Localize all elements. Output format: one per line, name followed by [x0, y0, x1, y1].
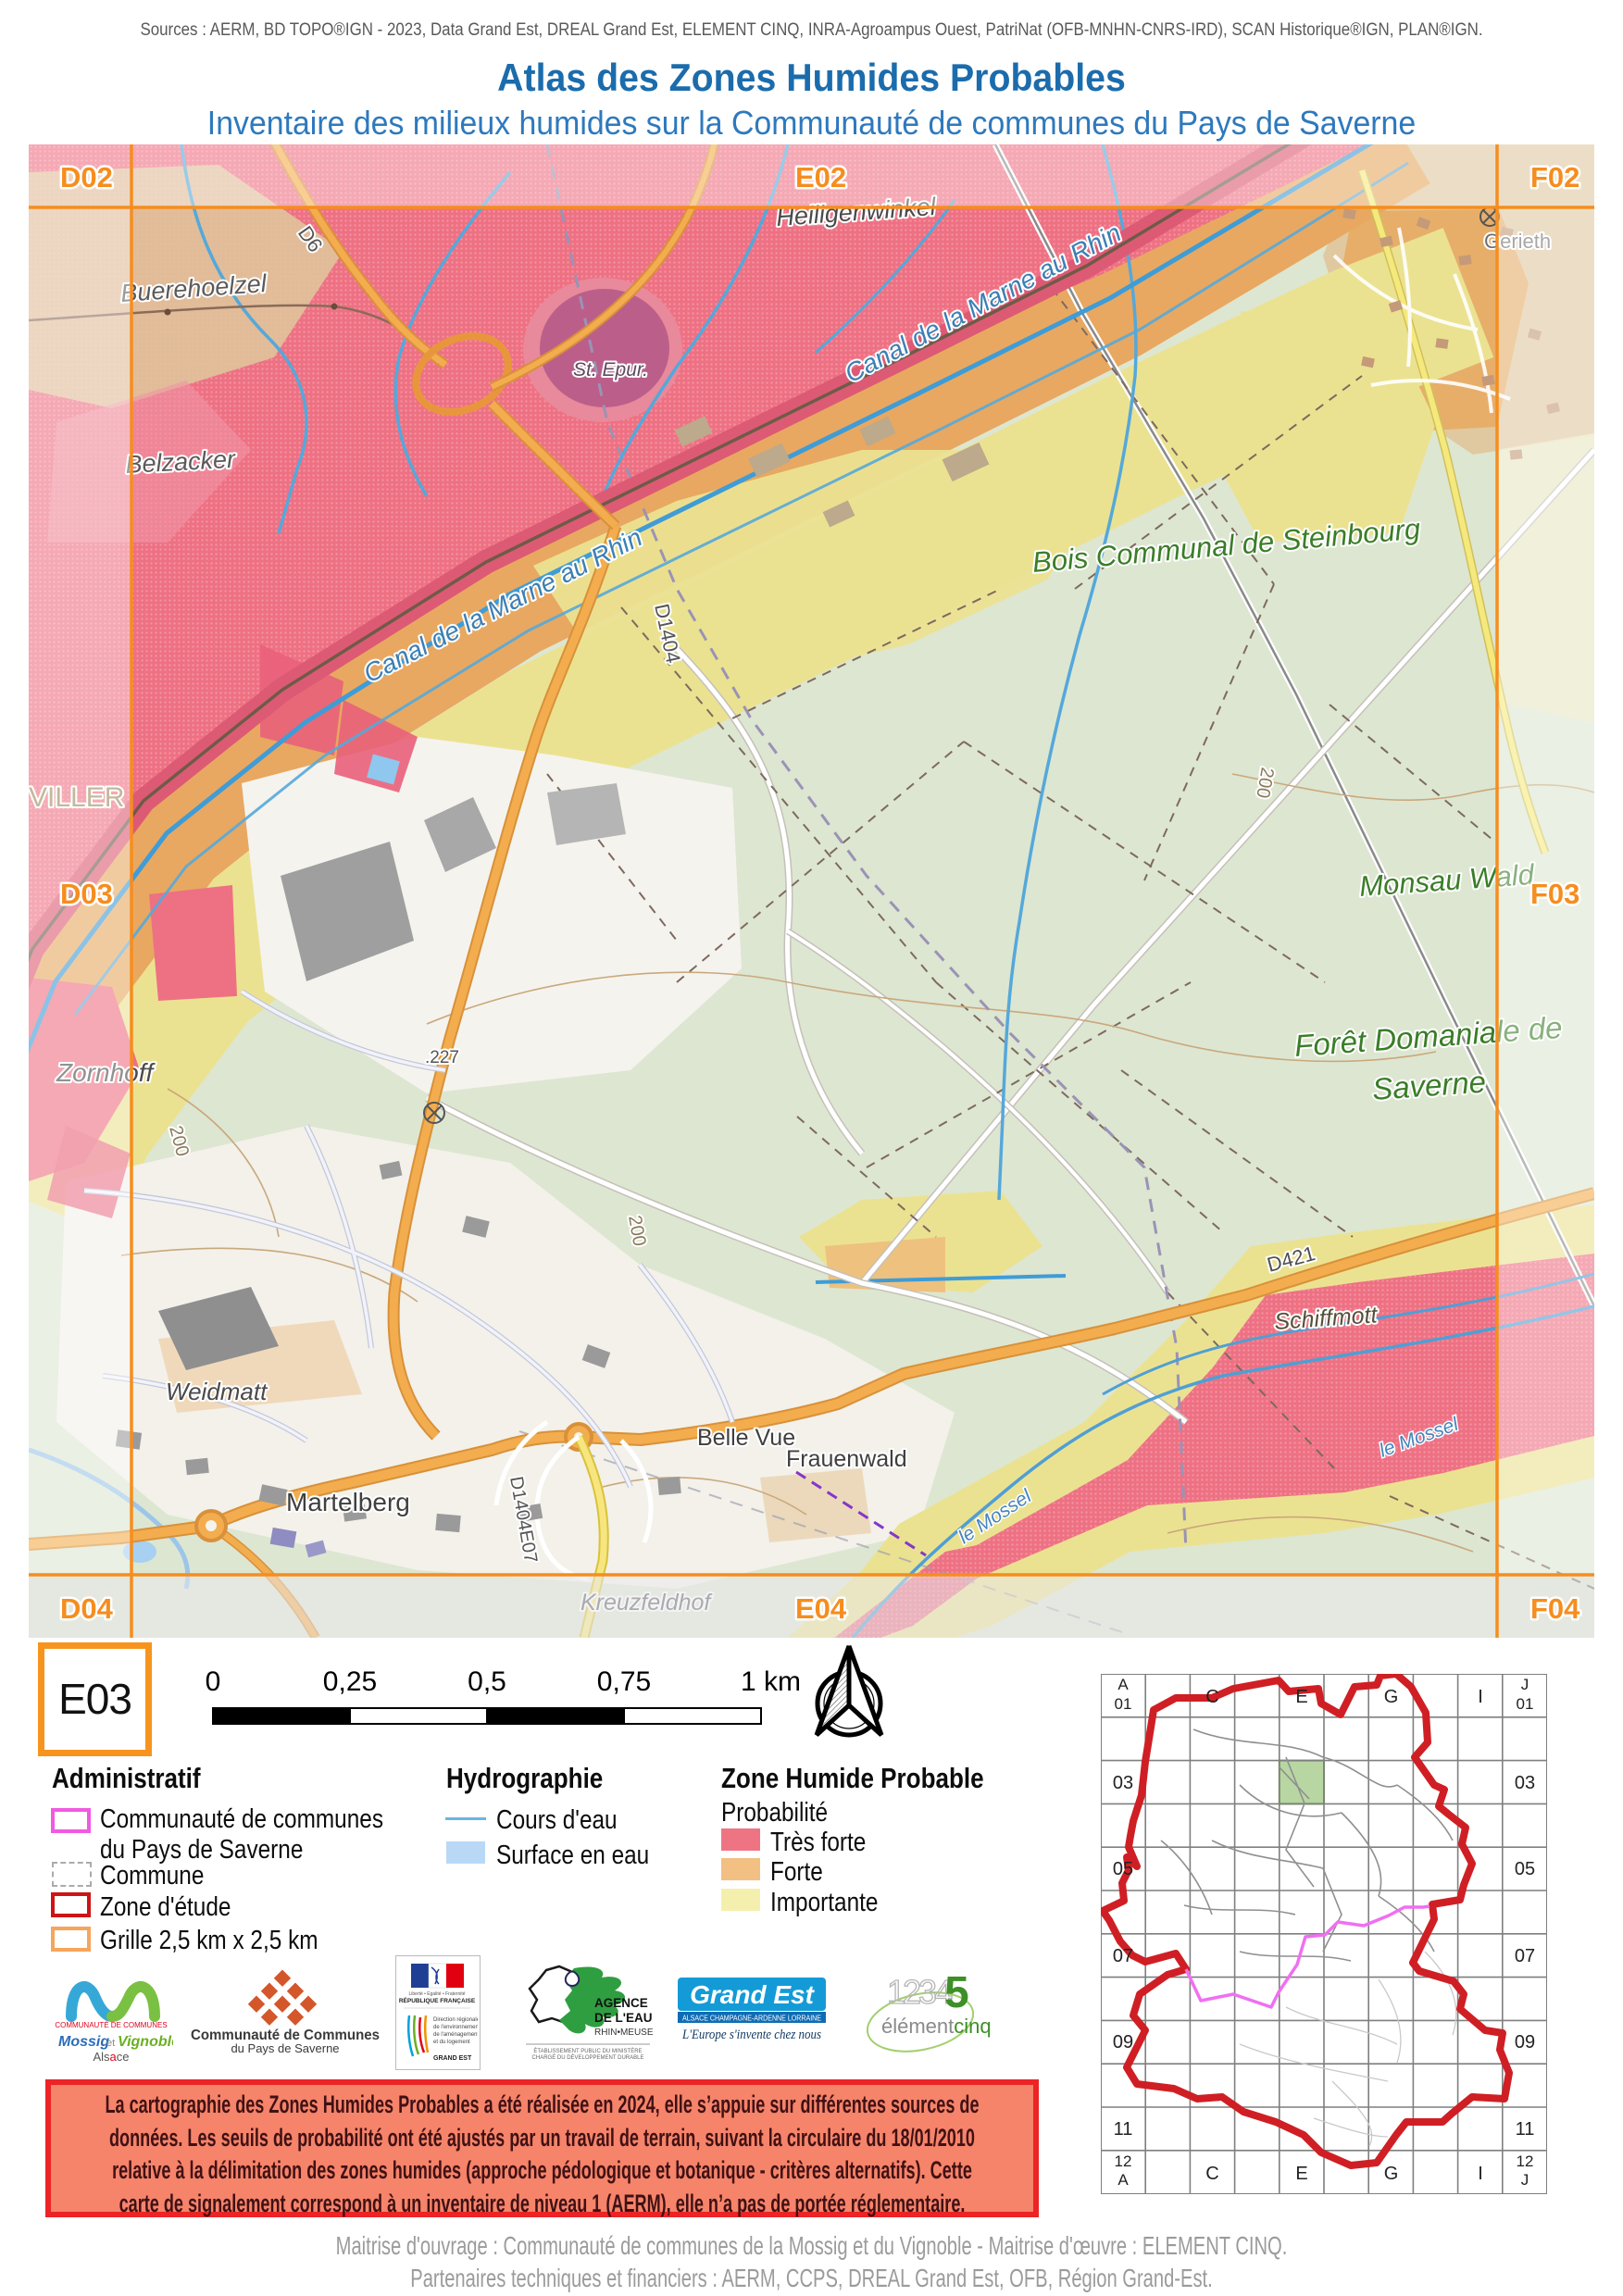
svg-text:I: I — [1478, 1687, 1483, 1707]
svg-text:07: 07 — [1113, 1946, 1133, 1966]
svg-text:11: 11 — [1516, 2119, 1535, 2140]
svg-text:0,5: 0,5 — [468, 1666, 506, 1697]
svg-text:CHARGÉ DU DÉVELOPPEMENT DURABL: CHARGÉ DU DÉVELOPPEMENT DURABLE — [532, 2054, 644, 2060]
svg-text:Vignoble: Vignoble — [118, 2034, 173, 2050]
svg-text:G: G — [1384, 1687, 1399, 1707]
svg-text:03: 03 — [1113, 1773, 1133, 1793]
svg-text:07: 07 — [1515, 1946, 1535, 1966]
svg-text:ALSACE CHAMPAGNE-ARDENNE LORRA: ALSACE CHAMPAGNE-ARDENNE LORRAINE — [682, 2015, 821, 2023]
svg-text:Frauenwald: Frauenwald — [786, 1446, 907, 1472]
svg-text:E: E — [1295, 1687, 1307, 1707]
svg-text:Grand Est: Grand Est — [690, 1980, 815, 2009]
svg-text:.227: .227 — [425, 1048, 459, 1067]
svg-text:09: 09 — [1515, 2032, 1535, 2053]
svg-text:et du logement: et du logement — [433, 2040, 470, 2045]
svg-text:A: A — [1117, 2171, 1129, 2189]
svg-text:1234: 1234 — [887, 1973, 952, 2011]
svg-text:C: C — [1205, 1687, 1218, 1707]
svg-text:du Pays de Saverne: du Pays de Saverne — [231, 2041, 339, 2055]
svg-text:0,75: 0,75 — [597, 1666, 651, 1697]
svg-text:0: 0 — [206, 1666, 221, 1697]
svg-text:Direction régionale: Direction régionale — [433, 2017, 478, 2023]
svg-text:COMMUNAUTÉ DE COMMUNES: COMMUNAUTÉ DE COMMUNES — [55, 2021, 167, 2029]
svg-text:GRAND EST: GRAND EST — [433, 2055, 472, 2062]
svg-text:12: 12 — [1517, 2152, 1534, 2170]
svg-text:Alsace: Alsace — [93, 2050, 129, 2064]
svg-text:F04: F04 — [1530, 1592, 1580, 1625]
svg-text:05: 05 — [1113, 1859, 1133, 1879]
svg-text:01: 01 — [1115, 1695, 1132, 1713]
svg-text:01: 01 — [1517, 1695, 1534, 1713]
svg-text:de l'aménagement: de l'aménagement — [433, 2032, 478, 2038]
svg-text:D04: D04 — [60, 1592, 114, 1625]
svg-text:I: I — [1478, 2164, 1483, 2184]
svg-text:5: 5 — [944, 1968, 969, 2017]
svg-text:0,25: 0,25 — [323, 1666, 377, 1697]
svg-text:RHIN•MEUSE: RHIN•MEUSE — [594, 2028, 654, 2038]
svg-text:Liberté • Égalité • Fraternité: Liberté • Égalité • Fraternité — [408, 1990, 465, 1997]
svg-text:03: 03 — [1515, 1773, 1535, 1793]
svg-text:F02: F02 — [1530, 161, 1579, 193]
svg-text:E: E — [1295, 2164, 1307, 2184]
svg-text:1 km: 1 km — [741, 1666, 801, 1697]
svg-text:L'Europe s'invente chez nous: L'Europe s'invente chez nous — [681, 2028, 821, 2042]
svg-text:J: J — [1521, 1676, 1529, 1693]
svg-text:RÉPUBLIQUE FRANÇAISE: RÉPUBLIQUE FRANÇAISE — [399, 1996, 476, 2004]
svg-text:DE L'EAU: DE L'EAU — [594, 2011, 652, 2025]
svg-text:Weidmatt: Weidmatt — [166, 1378, 268, 1405]
svg-text:Belzacker: Belzacker — [125, 445, 237, 479]
svg-text:Belle Vue: Belle Vue — [697, 1425, 795, 1451]
svg-text:A: A — [1117, 1676, 1129, 1693]
svg-text:J: J — [1521, 2171, 1529, 2189]
svg-text:G: G — [1384, 2164, 1399, 2184]
svg-text:St. Epur.: St. Epur. — [573, 359, 648, 381]
svg-text:Mossig: Mossig — [58, 2034, 109, 2050]
svg-text:et: et — [106, 2038, 115, 2049]
svg-text:E04: E04 — [795, 1592, 847, 1625]
svg-text:C: C — [1205, 2164, 1218, 2184]
svg-text:09: 09 — [1113, 2032, 1133, 2053]
svg-text:E02: E02 — [795, 161, 846, 193]
svg-text:AGENCE: AGENCE — [594, 1996, 648, 2010]
svg-text:D02: D02 — [60, 161, 113, 193]
svg-text:D03: D03 — [60, 878, 113, 910]
svg-text:F03: F03 — [1530, 878, 1579, 910]
svg-text:ÉTABLISSEMENT PUBLIC DU MINIST: ÉTABLISSEMENT PUBLIC DU MINISTÈRE — [533, 2048, 642, 2054]
svg-text:05: 05 — [1515, 1859, 1535, 1879]
svg-text:12: 12 — [1115, 2152, 1132, 2170]
svg-text:11: 11 — [1114, 2119, 1133, 2140]
svg-text:élémentcinq: élémentcinq — [881, 2015, 992, 2038]
svg-text:Martelberg: Martelberg — [286, 1488, 410, 1516]
svg-text:de l'environnement,: de l'environnement, — [433, 2025, 478, 2030]
